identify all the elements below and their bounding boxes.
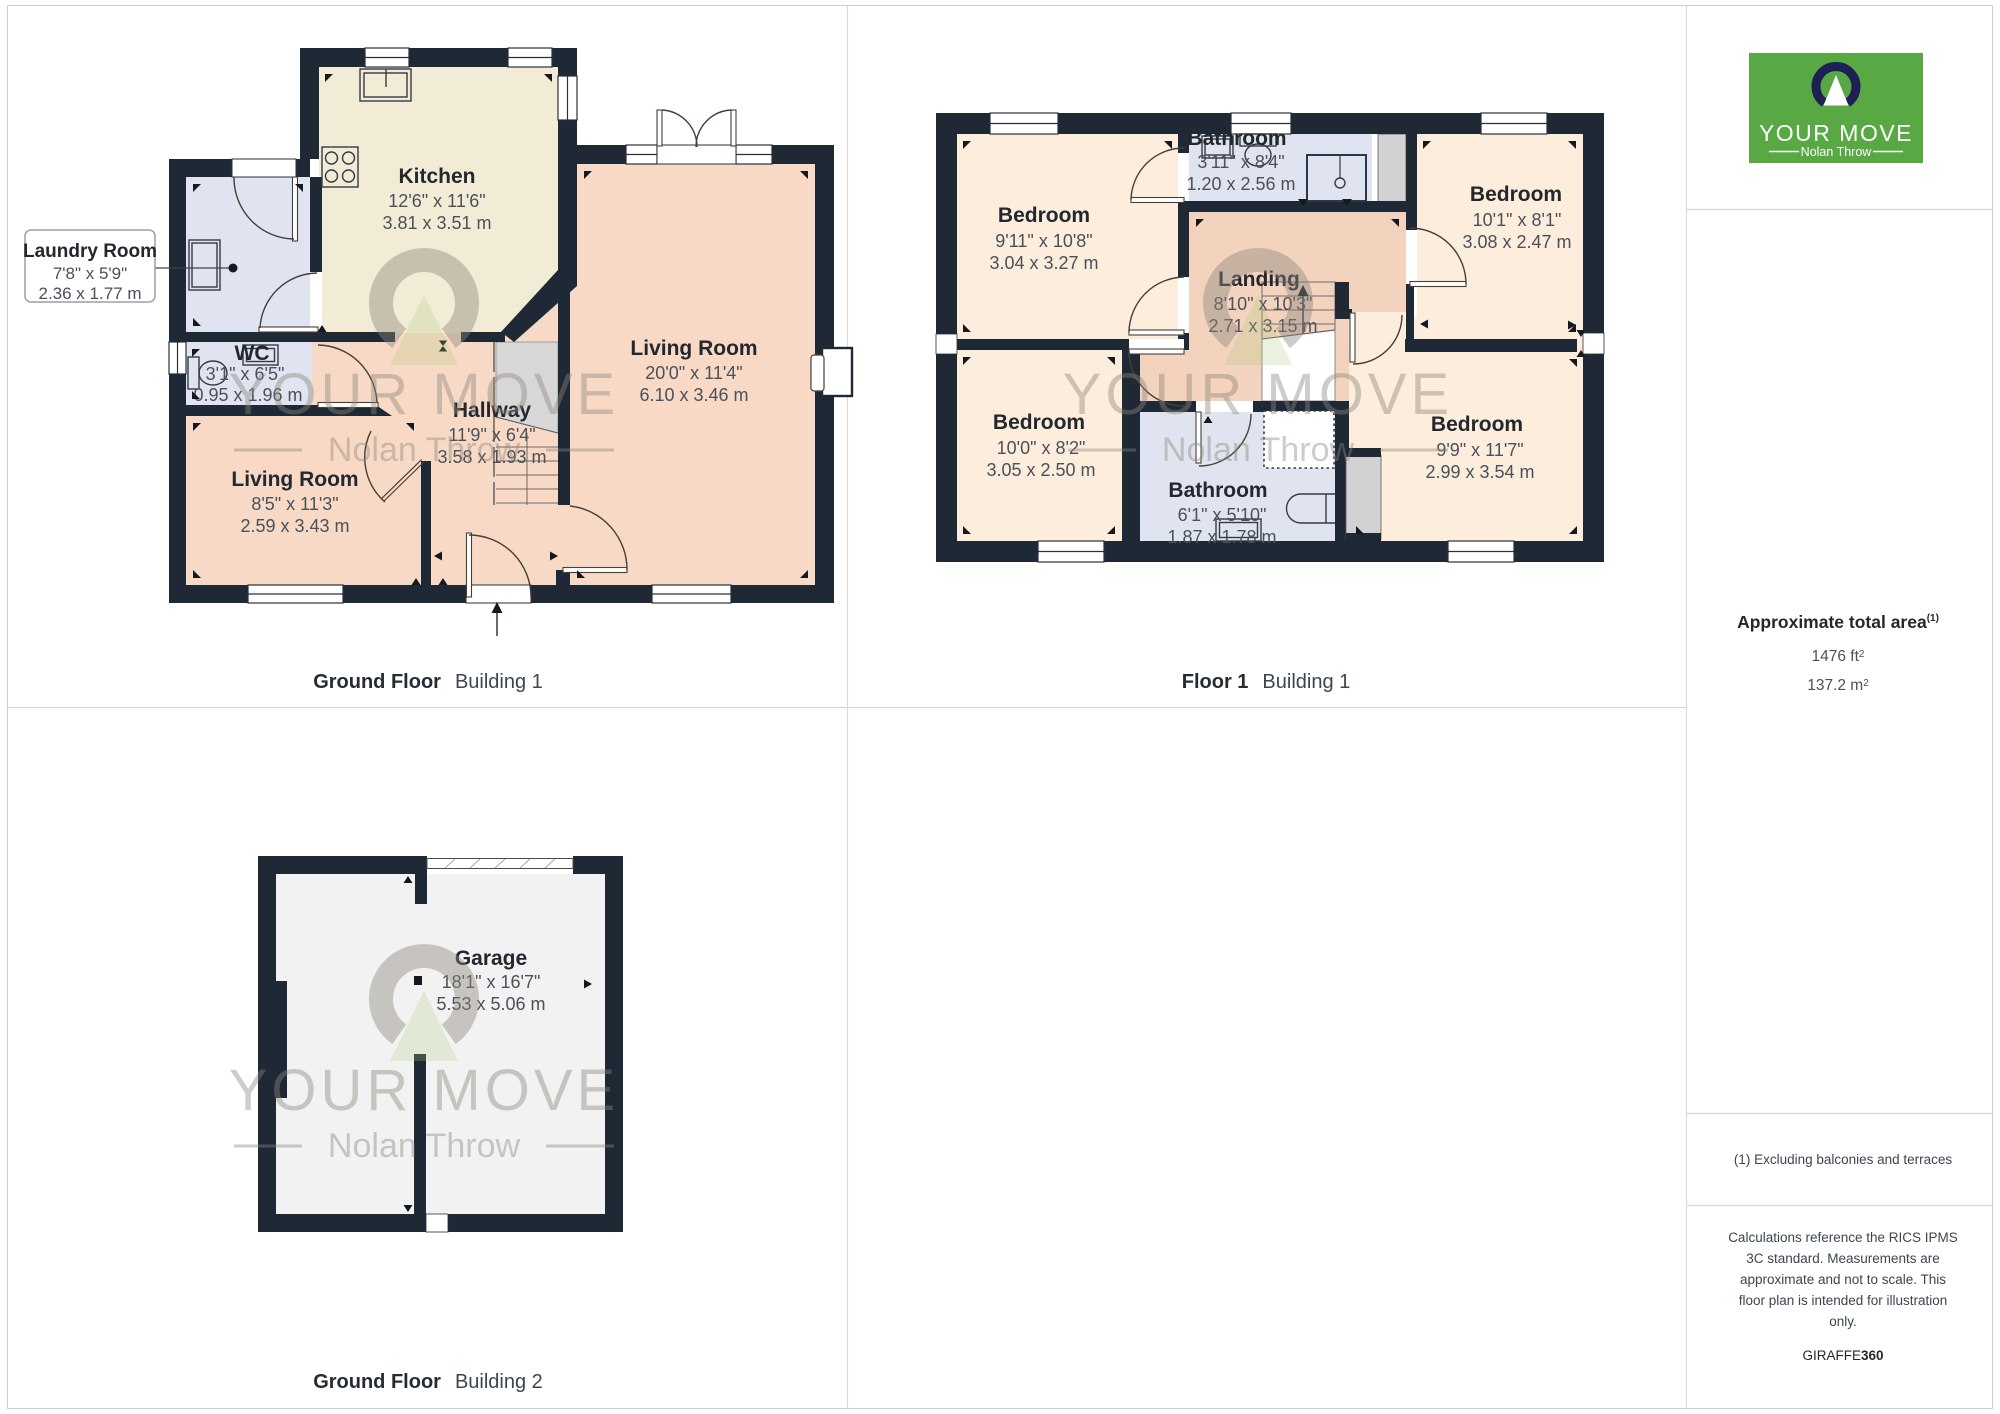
svg-text:3'11" x 8'4": 3'11" x 8'4" — [1197, 152, 1284, 172]
svg-text:12'6" x 11'6": 12'6" x 11'6" — [388, 191, 485, 211]
svg-text:2.36 x 1.77 m: 2.36 x 1.77 m — [38, 284, 141, 303]
svg-text:137.2 m2: 137.2 m2 — [1807, 677, 1869, 694]
svg-text:only.: only. — [1829, 1314, 1857, 1329]
svg-text:3.04 x 3.27 m: 3.04 x 3.27 m — [989, 253, 1098, 273]
svg-text:3.81 x 3.51 m: 3.81 x 3.51 m — [382, 213, 491, 233]
svg-text:Bathroom: Bathroom — [1187, 127, 1286, 150]
svg-text:(1) Excluding balconies and te: (1) Excluding balconies and terraces — [1734, 1152, 1953, 1167]
svg-text:Bathroom: Bathroom — [1168, 479, 1267, 502]
svg-text:YOUR MOVE: YOUR MOVE — [229, 1058, 620, 1123]
svg-text:Nolan Throw: Nolan Throw — [328, 1127, 521, 1165]
svg-text:Nolan Throw: Nolan Throw — [1162, 431, 1355, 469]
svg-text:Approximate total area(1): Approximate total area(1) — [1737, 612, 1939, 632]
svg-text:Floor 1Building 1: Floor 1Building 1 — [1182, 671, 1351, 693]
svg-text:1.87 x 1.78 m: 1.87 x 1.78 m — [1167, 527, 1276, 547]
svg-text:6.10 x 3.46 m: 6.10 x 3.46 m — [639, 385, 748, 405]
svg-text:7'8" x 5'9": 7'8" x 5'9" — [53, 264, 127, 283]
svg-text:6'1" x 5'10": 6'1" x 5'10" — [1178, 505, 1267, 525]
svg-text:8'5" x 11'3": 8'5" x 11'3" — [251, 494, 338, 514]
svg-text:9'9" x 11'7": 9'9" x 11'7" — [1436, 440, 1523, 460]
svg-text:Nolan Throw: Nolan Throw — [328, 431, 521, 469]
svg-text:GIRAFFE360: GIRAFFE360 — [1802, 1348, 1883, 1363]
svg-text:approximate and not to scale.: approximate and not to scale. This — [1740, 1272, 1946, 1287]
svg-text:Ground FloorBuilding 2: Ground FloorBuilding 2 — [313, 1371, 543, 1393]
svg-text:2.99 x 3.54 m: 2.99 x 3.54 m — [1425, 462, 1534, 482]
svg-text:20'0" x 11'4": 20'0" x 11'4" — [645, 363, 742, 383]
svg-text:Living Room: Living Room — [231, 468, 358, 491]
svg-text:Living Room: Living Room — [630, 337, 757, 360]
svg-text:Bedroom: Bedroom — [1470, 183, 1562, 206]
svg-text:Laundry Room: Laundry Room — [23, 241, 157, 262]
svg-text:YOUR MOVE: YOUR MOVE — [229, 362, 620, 427]
svg-text:3.05 x 2.50 m: 3.05 x 2.50 m — [986, 460, 1095, 480]
svg-text:YOUR MOVE: YOUR MOVE — [1759, 120, 1913, 146]
svg-text:10'1" x 8'1": 10'1" x 8'1" — [1473, 210, 1562, 230]
svg-text:1.20 x 2.56 m: 1.20 x 2.56 m — [1186, 174, 1295, 194]
svg-text:Calculations reference the RIC: Calculations reference the RICS IPMS — [1728, 1230, 1958, 1245]
svg-text:Kitchen: Kitchen — [398, 165, 475, 188]
svg-text:3.08 x 2.47 m: 3.08 x 2.47 m — [1462, 232, 1571, 252]
svg-text:YOUR MOVE: YOUR MOVE — [1063, 362, 1454, 427]
svg-text:floor plan is intended for ill: floor plan is intended for illustration — [1739, 1293, 1948, 1308]
svg-text:10'0" x 8'2": 10'0" x 8'2" — [997, 438, 1086, 458]
svg-text:3C standard. Measurements are: 3C standard. Measurements are — [1746, 1251, 1940, 1266]
svg-text:Nolan Throw: Nolan Throw — [1801, 145, 1873, 159]
svg-text:1476 ft2: 1476 ft2 — [1812, 648, 1865, 665]
svg-text:9'11" x 10'8": 9'11" x 10'8" — [995, 231, 1092, 251]
svg-text:2.59 x 3.43 m: 2.59 x 3.43 m — [240, 516, 349, 536]
svg-text:Ground FloorBuilding 1: Ground FloorBuilding 1 — [313, 671, 543, 693]
svg-text:Bedroom: Bedroom — [998, 204, 1090, 227]
